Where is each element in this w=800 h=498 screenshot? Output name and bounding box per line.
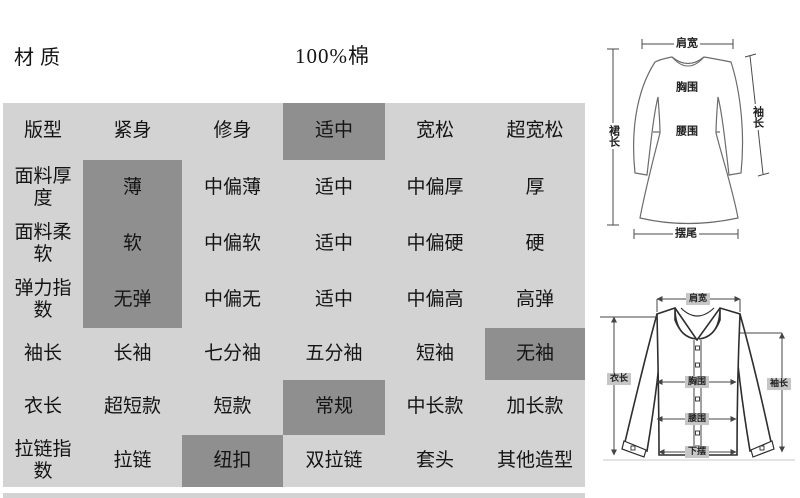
spec-option: 软 [83, 216, 182, 272]
spec-option: 薄 [83, 160, 182, 216]
spec-option: 中偏厚 [385, 160, 485, 216]
spec-option: 双拉链 [283, 435, 385, 487]
spec-option: 适中 [283, 216, 385, 272]
spec-option: 套头 [385, 435, 485, 487]
dress-hem-label: 摆尾 [673, 229, 699, 240]
spec-option: 宽松 [385, 103, 485, 160]
spec-option: 中偏薄 [182, 160, 283, 216]
spec-option: 超短款 [83, 380, 182, 435]
spec-option: 硬 [485, 216, 585, 272]
spec-row-label: 版型 [3, 103, 83, 160]
spec-option: 拉链 [83, 435, 182, 487]
material-label: 材质 [14, 41, 66, 70]
spec-row-label: 拉链指数 [3, 435, 83, 487]
spec-table: 版型 紧身 修身 适中 宽松 超宽松 面料厚度 薄 中偏薄 适中 中偏厚 厚 面… [3, 103, 585, 487]
spec-option: 七分袖 [182, 328, 283, 380]
next-table-strip [3, 493, 585, 498]
spec-row-label: 弹力指数 [3, 272, 83, 328]
dress-waist-label: 腰围 [674, 127, 700, 138]
shirt-hem-label: 下摆 [685, 446, 709, 458]
shirt-sleeve-length-label: 袖长 [767, 378, 791, 390]
shirt-waist-label: 腰围 [685, 413, 709, 425]
spec-option: 无弹 [83, 272, 182, 328]
spec-option: 适中 [283, 272, 385, 328]
spec-option: 高弹 [485, 272, 585, 328]
spec-option: 短袖 [385, 328, 485, 380]
spec-option: 中偏无 [182, 272, 283, 328]
spec-option: 中偏高 [385, 272, 485, 328]
spec-option: 加长款 [485, 380, 585, 435]
shirt-measurement-diagram: 肩宽 衣长 胸围 腰围 下摆 袖长 [595, 250, 800, 498]
dress-bust-label: 胸围 [674, 83, 700, 94]
spec-row-label: 袖长 [3, 328, 83, 380]
product-spec-sheet: 材质 100%棉 版型 紧身 修身 适中 宽松 超宽松 面料厚度 薄 中偏薄 适… [0, 0, 800, 498]
spec-option: 紧身 [83, 103, 182, 160]
spec-option: 纽扣 [182, 435, 283, 487]
spec-option: 厚 [485, 160, 585, 216]
spec-option: 无袖 [485, 328, 585, 380]
shirt-shoulder-width-label: 肩宽 [686, 293, 710, 305]
spec-row-label: 面料柔软 [3, 216, 83, 272]
spec-option: 中长款 [385, 380, 485, 435]
spec-option: 中偏硬 [385, 216, 485, 272]
spec-option: 常规 [283, 380, 385, 435]
spec-option: 适中 [283, 160, 385, 216]
shirt-bust-label: 胸围 [685, 376, 709, 388]
material-value: 100%棉 [295, 40, 370, 70]
dress-skirt-length-label: 裙长 [608, 123, 619, 149]
dress-sleeve-length-label: 袖长 [752, 104, 763, 130]
shirt-length-label: 衣长 [607, 373, 631, 385]
spec-option: 适中 [283, 103, 385, 160]
dress-measurement-diagram: 肩宽 胸围 腰围 摆尾 裙长 袖长 [595, 5, 795, 247]
spec-option: 中偏软 [182, 216, 283, 272]
spec-row-label: 面料厚度 [3, 160, 83, 216]
spec-option: 五分袖 [283, 328, 385, 380]
spec-option: 修身 [182, 103, 283, 160]
spec-option: 短款 [182, 380, 283, 435]
spec-row-label: 衣长 [3, 380, 83, 435]
spec-option: 长袖 [83, 328, 182, 380]
spec-option: 超宽松 [485, 103, 585, 160]
dress-shoulder-width-label: 肩宽 [674, 39, 700, 50]
spec-option: 其他造型 [485, 435, 585, 487]
